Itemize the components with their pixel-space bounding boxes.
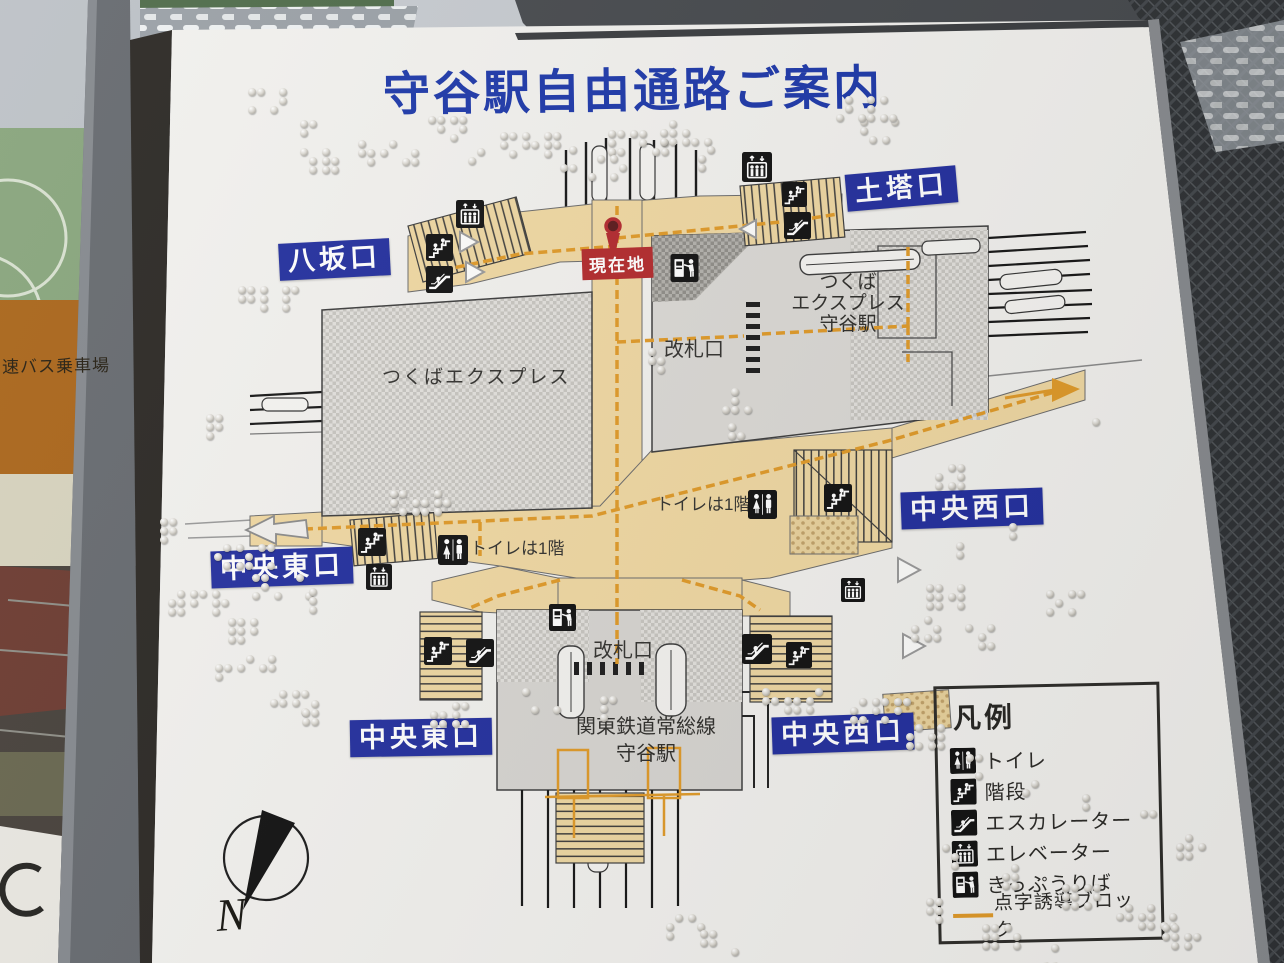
toilet-icon bbox=[950, 747, 977, 774]
compass-north-label: N bbox=[214, 887, 248, 942]
exit-label-yasakaguchi: 八坂口 bbox=[278, 238, 391, 281]
joso-gate-label: 改札口 bbox=[593, 634, 653, 663]
legend-item-label: エレベーター bbox=[986, 836, 1113, 868]
stairs-icon bbox=[782, 182, 807, 207]
toilet-note-right: トイレは1階 bbox=[656, 490, 750, 515]
ticket-machine-icon bbox=[547, 604, 578, 631]
toilet-icon bbox=[748, 490, 777, 519]
tx-station-line2: エクスプレス bbox=[770, 293, 926, 314]
toilet-note-left: トイレは1階 bbox=[470, 534, 564, 559]
legend-item-label: エスカレーター bbox=[985, 804, 1133, 836]
tx-station-line3: 守谷駅 bbox=[770, 314, 926, 335]
exit-label-chuo-nishi-lower: 中央西口 bbox=[771, 713, 914, 755]
exit-label-chuo-higashi-upper: 中央東口 bbox=[210, 547, 353, 589]
legend-item-label: 点字誘導ブロック bbox=[994, 884, 1150, 941]
toilet-icon bbox=[438, 535, 468, 565]
tx-station-label: つくば エクスプレス 守谷駅 bbox=[770, 272, 926, 335]
escalator-icon bbox=[466, 639, 494, 667]
legend-row: エレベーター bbox=[952, 834, 1149, 869]
stairs-icon bbox=[358, 528, 386, 556]
stairs-icon bbox=[426, 234, 453, 261]
elevator-icon bbox=[366, 564, 392, 590]
escalator-icon bbox=[426, 266, 453, 293]
legend-row: トイレ bbox=[950, 741, 1147, 776]
stairs-icon bbox=[950, 778, 977, 805]
joso-station-line1: 関東鉄道常総線 bbox=[548, 714, 744, 741]
legend-item-label: トイレ bbox=[984, 744, 1048, 774]
tx-station-line1: つくば bbox=[770, 272, 926, 293]
tactile-path-line bbox=[953, 913, 993, 918]
legend-row: 点字誘導ブロック bbox=[953, 896, 1150, 931]
stairs-icon bbox=[824, 484, 852, 512]
sign-title: 守谷駅自由通路ご案内 bbox=[283, 47, 984, 126]
elevator-icon bbox=[841, 578, 865, 602]
legend-item-label: 階段 bbox=[984, 775, 1027, 805]
exit-label-chuo-nishi-upper: 中央西口 bbox=[900, 488, 1043, 530]
joso-station-label: 関東鉄道常総線 守谷駅 bbox=[548, 714, 744, 768]
escalator-icon bbox=[784, 212, 811, 239]
joso-station-line2: 守谷駅 bbox=[548, 741, 744, 768]
bus-sign-text: 高速バス乗車場 bbox=[0, 351, 110, 378]
legend-row: 階段 bbox=[950, 772, 1147, 807]
legend-row: エスカレーター bbox=[951, 803, 1148, 838]
elevator-icon bbox=[952, 840, 979, 867]
elevator-icon bbox=[456, 200, 484, 228]
elevator-icon bbox=[742, 152, 772, 182]
stairs-icon bbox=[424, 637, 452, 665]
escalator-icon bbox=[742, 634, 772, 664]
tx-gate-label: 改札口 bbox=[664, 333, 724, 362]
ticket-machine-icon bbox=[668, 254, 701, 282]
escalator-icon bbox=[951, 809, 978, 836]
tx-area-label: つくばエクスプレス bbox=[382, 362, 570, 389]
ticket-machine-icon bbox=[952, 871, 979, 898]
current-location-label: 現在地 bbox=[581, 247, 653, 280]
legend-title: 凡例 bbox=[953, 693, 1146, 737]
legend-box: 凡例 トイレ 階段 エスカレーター エレベーター きっぷうりば 点字誘導ブロック bbox=[933, 682, 1164, 945]
stairs-icon bbox=[786, 642, 812, 668]
exit-label-chuo-higashi-lower: 中央東口 bbox=[350, 718, 493, 758]
